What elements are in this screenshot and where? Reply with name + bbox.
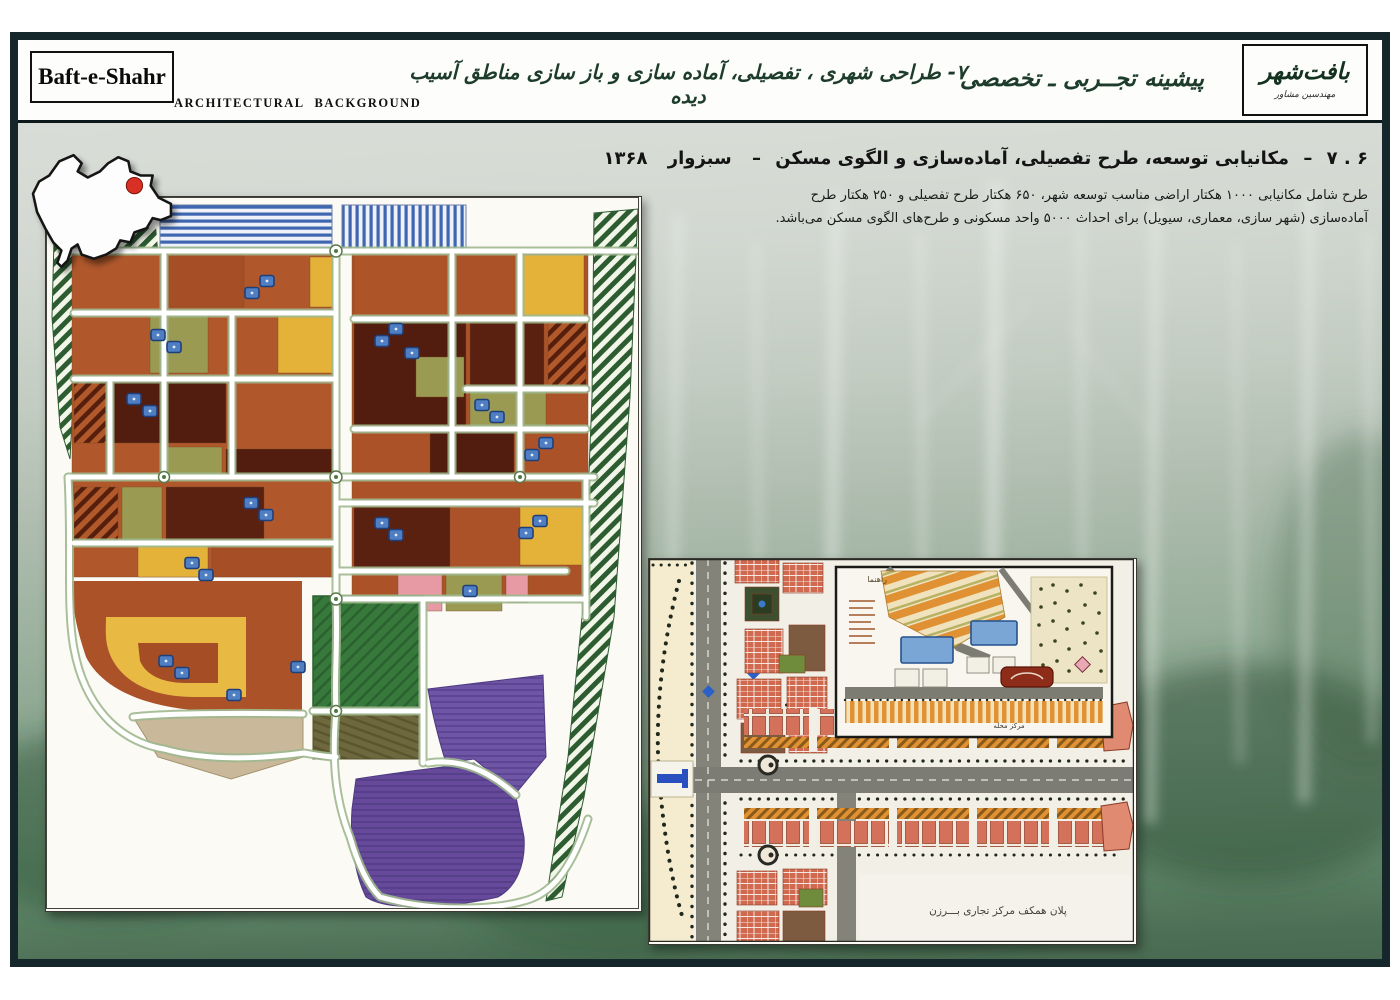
section-location: سبزوار [668,148,732,169]
water-strips [160,205,466,249]
consultant-logo-subtext: مهندسین مشاور [1275,90,1336,100]
section-title: مکانیابی توسعه، طرح تفصیلی، آماده‌سازی و… [775,148,1289,169]
header-bar: Baft-e-Shahr ARCHITECTURAL BACKGROUND ۷-… [18,40,1382,123]
inset-panel [836,567,1112,737]
inset-caption: مرکز محله [949,722,1069,730]
section-year: ۱۳۶۸ [603,148,647,169]
section-number: ۶ . ۷ [1327,148,1368,169]
slide-frame: Baft-e-Shahr ARCHITECTURAL BACKGROUND ۷-… [10,32,1390,967]
iran-outline [33,155,171,267]
header-subtitle-en: ARCHITECTURAL BACKGROUND [174,96,421,111]
detail-map-caption: پلان همکف مرکز تجاری بـــرزن [867,905,1129,917]
monument [651,761,693,797]
section-dash: – [1303,148,1312,169]
section-body-text: طرح شامل مکانیابی ۱۰۰۰ هکتار اراضی مناسب… [768,185,1368,231]
consultant-logo: بافت‌شهر مهندسین مشاور [1242,44,1368,116]
master-plan-drawing [46,197,639,909]
section-dash2: – [752,148,761,169]
iran-location-map [22,141,186,283]
content-area: ۶ . ۷ – مکانیابی توسعه، طرح تفصیلی، آماد… [18,123,1382,959]
company-logo-text: Baft-e-Shahr [38,64,166,90]
header-subtitle-fa: پیشینه تجــربی ـ تخصصی [942,66,1222,92]
sabzevar-marker [126,178,142,194]
slide-page: Baft-e-Shahr ARCHITECTURAL BACKGROUND ۷-… [0,0,1400,1000]
section-title-line: ۶ . ۷ – مکانیابی توسعه، طرح تفصیلی، آماد… [603,148,1368,169]
inset-legend-title: راهنما [847,575,887,584]
company-logo: Baft-e-Shahr [30,51,174,103]
header-chapter-title: ۷- طراحی شهری ، تفصیلی، آماده سازی و باز… [403,60,973,108]
master-plan-map [45,196,642,912]
detail-plan-drawing [649,559,1134,942]
consultant-logo-text: بافت‌شهر [1260,60,1350,85]
detail-plan-map: پلان همکف مرکز تجاری بـــرزن راهنما مرکز… [648,558,1137,945]
